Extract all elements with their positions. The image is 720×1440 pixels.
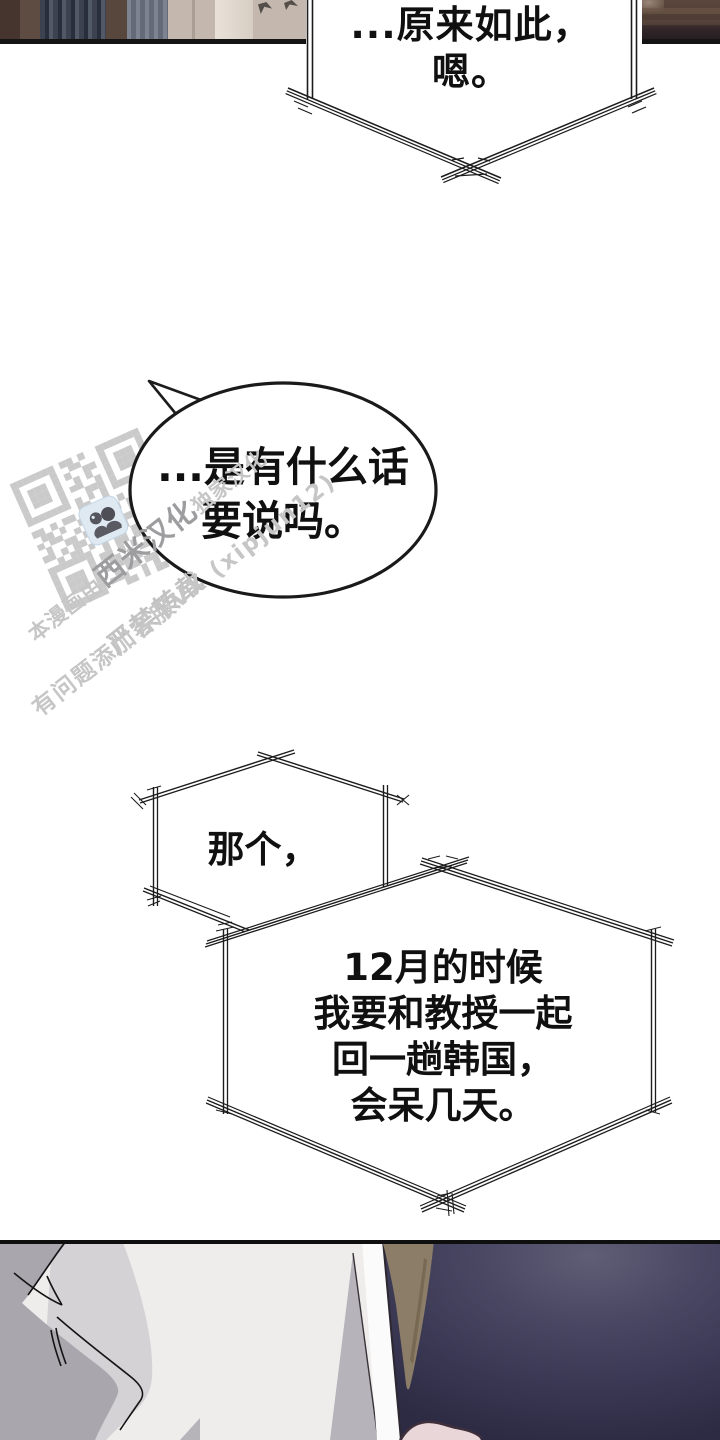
comic-page: ...原来如此， 嗯。 ...是有什么话 要说吗。 那个， 12月的时候 我要和… — [0, 0, 720, 1440]
bubble-oval-line-1: ...是有什么话 — [133, 440, 433, 494]
bubble-hex2-line-4: 会呆几天。 — [248, 1083, 638, 1129]
bubble-top-line-2: 嗯。 — [321, 49, 621, 96]
bubble-hex1-text: 那个， — [157, 819, 369, 873]
bubble-hex2-line-1: 12月的时候 — [248, 945, 638, 991]
bubble-top-line-1: ...原来如此， — [321, 2, 621, 49]
bubble-hex1-line-1: 那个， — [157, 819, 369, 873]
panel-border-line — [0, 1240, 720, 1244]
bubble-hex2-line-3: 回一趟韩国， — [248, 1037, 638, 1083]
bubble-top-text: ...原来如此， 嗯。 — [321, 2, 621, 96]
bubble-hex2-text: 12月的时候 我要和教授一起 回一趟韩国， 会呆几天。 — [248, 945, 638, 1129]
navy-background — [380, 1240, 720, 1440]
bubble-hex2-line-2: 我要和教授一起 — [248, 991, 638, 1037]
panel-bottom-scene — [0, 1240, 720, 1440]
